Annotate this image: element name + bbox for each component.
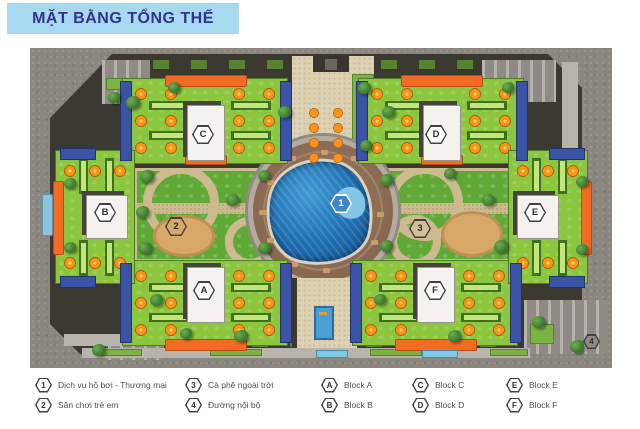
marker-symbol: 3 — [417, 223, 422, 234]
legend-label: Sân chơi trẻ em — [58, 400, 118, 410]
legend-item-block-f: F Block F — [506, 397, 557, 413]
tree-icon — [64, 242, 76, 253]
tree-icon — [150, 294, 163, 306]
hexagon-icon: C — [412, 378, 429, 393]
balcony-blue — [516, 81, 528, 161]
bench — [316, 350, 348, 358]
tree-icon — [168, 82, 180, 93]
tree-icon — [502, 82, 514, 93]
balcony-blue — [350, 263, 362, 343]
balcony-blue — [549, 148, 585, 160]
tree-icon — [226, 194, 239, 206]
tree-icon — [374, 294, 386, 305]
tree-icon — [532, 316, 545, 328]
legend-label: Đường nội bộ — [208, 400, 260, 410]
tree-icon — [448, 330, 461, 342]
tree-icon — [570, 340, 584, 353]
cafe-pad — [441, 211, 503, 257]
map-label-block-e: E — [524, 203, 546, 222]
map-label-block-c: C — [192, 125, 214, 144]
water-feature — [314, 306, 334, 340]
legend-symbol: 3 — [191, 381, 195, 390]
balcony-blue — [120, 81, 132, 161]
sidewalk-right — [562, 62, 578, 158]
legend-symbol: C — [418, 381, 424, 390]
map-label-block-d: D — [425, 125, 447, 144]
balcony-orange — [165, 339, 247, 351]
legend-label: Dịch vụ hồ bơi - Thương mại — [58, 380, 167, 390]
hexagon-icon: 3 — [185, 378, 202, 393]
hexagon-icon: 1 — [35, 378, 52, 393]
tree-icon — [382, 106, 395, 118]
legend-label: Block E — [529, 380, 558, 390]
legend-label: Block A — [344, 380, 372, 390]
legend-item-block-e: E Block E — [506, 377, 558, 393]
tree-icon — [258, 242, 271, 254]
marker-symbol: 1 — [338, 198, 343, 209]
legend-symbol: 1 — [41, 381, 45, 390]
balcony-blue — [280, 81, 292, 161]
legend-symbol: 4 — [191, 401, 195, 410]
tree-icon — [444, 168, 456, 179]
legend-label: Block C — [435, 380, 464, 390]
tree-icon — [494, 240, 508, 253]
block-symbol: C — [200, 129, 207, 140]
tree-icon — [278, 106, 291, 118]
balcony-blue — [510, 263, 522, 343]
block-c-wing — [122, 78, 288, 164]
tree-icon — [92, 344, 105, 356]
block-symbol: F — [432, 285, 438, 296]
tree-icon — [136, 206, 149, 218]
tree-icon — [576, 244, 588, 255]
tree-icon — [126, 96, 140, 109]
block-symbol: E — [532, 207, 538, 218]
tree-icon — [234, 330, 248, 342]
legend-item-block-c: C Block C — [412, 377, 464, 393]
hexagon-icon: D — [412, 398, 429, 413]
block-symbol: B — [102, 207, 109, 218]
pool-lounge-chairs — [319, 208, 326, 213]
hexagon-icon: A — [321, 378, 338, 393]
map-marker-4-internal-road: 4 — [583, 334, 600, 349]
legend-symbol: E — [512, 381, 517, 390]
legend-label: Block F — [529, 400, 557, 410]
tree-icon — [380, 240, 393, 252]
legend-symbol: F — [512, 401, 517, 410]
balcony-blue — [549, 276, 585, 288]
legend-item-4: 4 Đường nội bộ — [185, 397, 260, 413]
hexagon-icon: E — [506, 378, 523, 393]
block-d-wing — [358, 78, 524, 164]
tree-icon — [576, 176, 588, 187]
tree-icon — [358, 82, 371, 94]
legend-symbol: B — [327, 401, 333, 410]
tree-icon — [138, 242, 152, 254]
marker-symbol: 4 — [589, 337, 593, 346]
block-symbol: A — [201, 285, 208, 296]
marker-symbol: 2 — [173, 221, 178, 232]
entrance-gate — [313, 56, 349, 72]
hexagon-icon: 2 — [35, 398, 52, 413]
cafe-tables — [304, 106, 352, 166]
bench — [422, 350, 458, 358]
page-title-banner: MẶT BẰNG TỔNG THỂ — [7, 3, 239, 34]
balcony-blue — [120, 263, 132, 343]
tree-icon — [108, 92, 120, 103]
tree-icon — [380, 174, 393, 186]
master-plan-map: 1 2 3 4 A B C D E F — [30, 48, 612, 368]
tree-icon — [180, 328, 192, 339]
legend-item-3: 3 Cà phê ngoài trời — [185, 377, 274, 393]
balcony-blue — [60, 148, 96, 160]
balcony-blue — [280, 263, 292, 343]
map-marker-2-playground: 2 — [165, 217, 187, 236]
tree-icon — [360, 140, 372, 151]
legend-symbol: D — [418, 401, 424, 410]
grass-verge — [490, 349, 528, 356]
legend-label: Cà phê ngoài trời — [208, 380, 274, 390]
legend-item-block-a: A Block A — [321, 377, 372, 393]
tree-icon — [482, 194, 495, 206]
legend-symbol: A — [327, 381, 333, 390]
legend-label: Block B — [344, 400, 373, 410]
legend-label: Block D — [435, 400, 464, 410]
legend-item-block-d: D Block D — [412, 397, 464, 413]
block-symbol: D — [433, 129, 440, 140]
map-label-block-b: B — [94, 203, 116, 222]
grass-verge — [100, 349, 142, 356]
legend-item-block-b: B Block B — [321, 397, 373, 413]
legend-item-2: 2 Sân chơi trẻ em — [35, 397, 118, 413]
balcony-orange — [401, 75, 483, 87]
legend-symbol: 2 — [41, 401, 45, 410]
tree-icon — [64, 178, 76, 189]
balcony-blue — [60, 276, 96, 288]
block-a-wing — [122, 260, 288, 346]
map-marker-3-outdoor-cafe: 3 — [409, 219, 431, 238]
hexagon-icon: B — [321, 398, 338, 413]
legend-item-1: 1 Dịch vụ hồ bơi - Thương mại — [35, 377, 167, 393]
hexagon-icon: 4 — [185, 398, 202, 413]
tree-icon — [140, 170, 154, 183]
map-marker-1-pool-service: 1 — [330, 194, 352, 213]
balcony-orange — [53, 181, 64, 255]
tree-icon — [258, 170, 270, 181]
hexagon-icon: F — [506, 398, 523, 413]
page-title: MẶT BẰNG TỔNG THỂ — [32, 10, 214, 28]
map-label-block-f: F — [424, 281, 446, 300]
map-label-block-a: A — [193, 281, 215, 300]
site-plan-page: MẶT BẰNG TỔNG THỂ — [0, 0, 640, 429]
bus-stop — [42, 194, 53, 236]
